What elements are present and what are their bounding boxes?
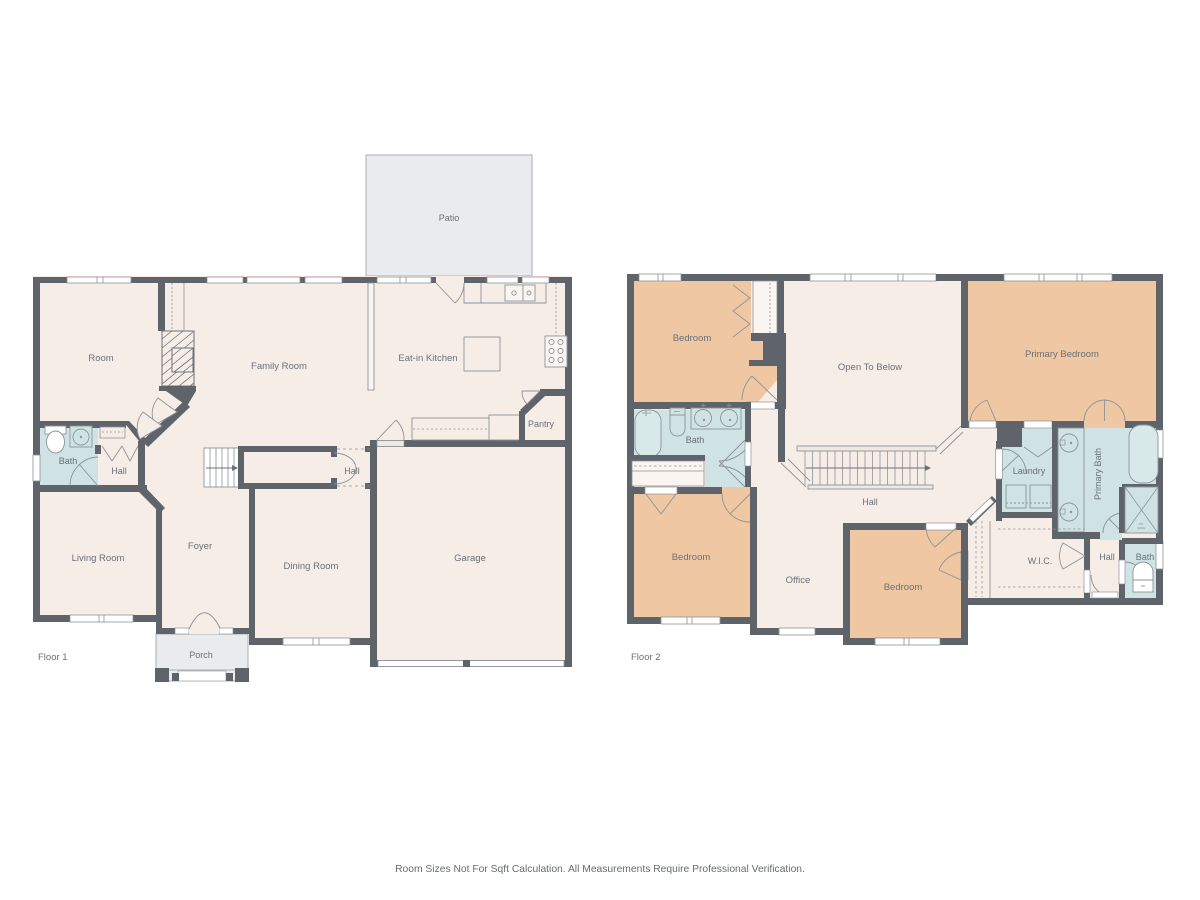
- svg-text:Dining Room: Dining Room: [284, 561, 339, 572]
- svg-text:Hall: Hall: [344, 466, 360, 476]
- svg-text:Garage: Garage: [454, 553, 486, 564]
- svg-text:Primary Bath: Primary Bath: [1093, 448, 1103, 500]
- svg-text:Laundry: Laundry: [1013, 466, 1046, 476]
- svg-text:Porch: Porch: [189, 650, 213, 660]
- svg-text:Hall: Hall: [1099, 552, 1115, 562]
- svg-text:Hall: Hall: [862, 497, 878, 507]
- svg-text:Office: Office: [786, 575, 811, 586]
- svg-text:Bath: Bath: [59, 456, 78, 466]
- svg-text:Open To Below: Open To Below: [838, 362, 902, 373]
- svg-text:Floor 2: Floor 2: [631, 652, 661, 663]
- svg-text:Pantry: Pantry: [528, 419, 555, 429]
- svg-text:Family Room: Family Room: [251, 361, 307, 372]
- svg-text:Room Sizes Not For Sqft Calcul: Room Sizes Not For Sqft Calculation. All…: [395, 864, 805, 875]
- svg-text:Hall: Hall: [111, 466, 127, 476]
- svg-text:Bedroom: Bedroom: [673, 333, 712, 344]
- svg-text:Room: Room: [88, 353, 113, 364]
- svg-text:Living Room: Living Room: [72, 553, 125, 564]
- svg-text:Bedroom: Bedroom: [672, 552, 711, 563]
- svg-text:Bath: Bath: [1136, 552, 1155, 562]
- svg-text:Eat-in Kitchen: Eat-in Kitchen: [398, 353, 457, 364]
- svg-text:Bedroom: Bedroom: [884, 582, 923, 593]
- svg-text:Patio: Patio: [439, 213, 460, 223]
- svg-text:W.I.C.: W.I.C.: [1028, 556, 1053, 566]
- svg-text:Floor 1: Floor 1: [38, 652, 68, 663]
- svg-text:Foyer: Foyer: [188, 541, 212, 552]
- svg-text:Primary Bedroom: Primary Bedroom: [1025, 349, 1099, 360]
- svg-text:Bath: Bath: [686, 435, 705, 445]
